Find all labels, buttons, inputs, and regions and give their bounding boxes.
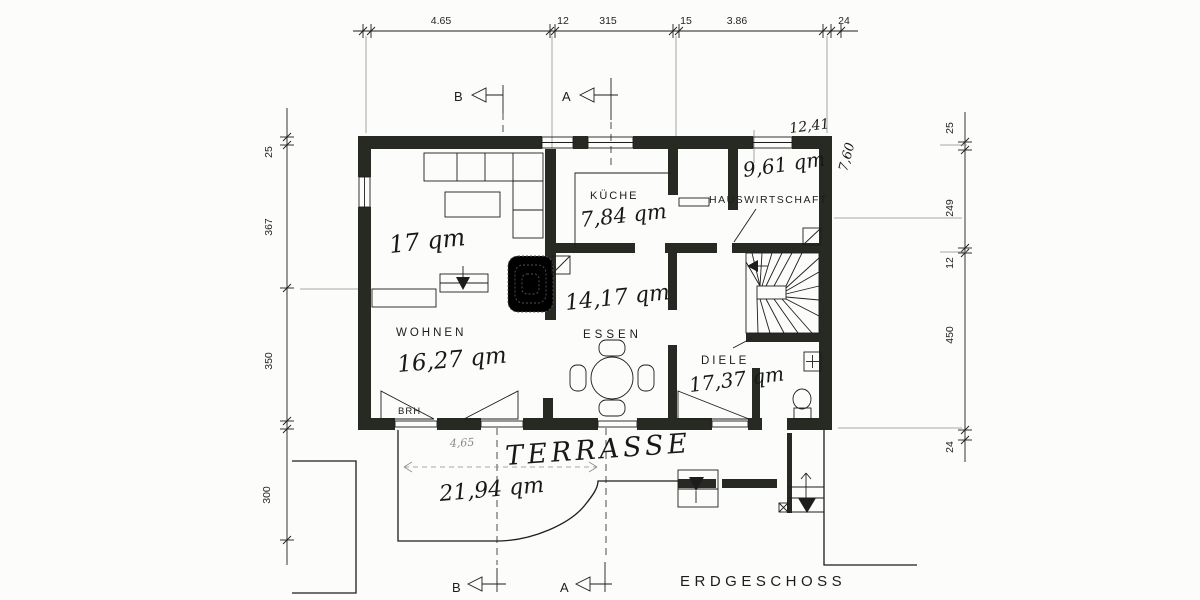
section-letter-a-bottom: A — [560, 580, 569, 595]
section-marker-b-top: B — [454, 85, 503, 134]
floor-plan-page: 4.65 12 315 15 3.86 24 25 367 350 300 — [0, 0, 1200, 600]
window-sill-bottom-1 — [395, 421, 437, 427]
dining-chair — [599, 340, 625, 356]
room-label-kueche: KÜCHE — [590, 190, 639, 202]
window-sill-bottom-2 — [481, 421, 523, 427]
sideboard — [372, 289, 436, 307]
floor-title: ERDGESCHOSS — [680, 573, 846, 590]
dim-label-left-1: 367 — [263, 218, 275, 236]
dim-label-left-2: 350 — [263, 352, 275, 370]
entrance-steps-left — [678, 470, 718, 507]
garage-outline — [292, 461, 356, 593]
wall-under-stairs — [746, 333, 819, 342]
stair-direction-arrow — [747, 260, 768, 272]
section-marker-b-bottom: B — [452, 428, 506, 595]
section-letter-a-top: A — [562, 89, 571, 104]
window-left — [359, 177, 370, 207]
dim-label-right-0: 25 — [944, 122, 956, 134]
section-letter-b-top: B — [454, 89, 463, 104]
section-letter-b-bottom: B — [452, 580, 461, 595]
step-element — [440, 266, 488, 292]
dim-label-right-1: 249 — [944, 199, 956, 217]
door-swing-wohnen-2 — [464, 391, 518, 419]
dim-label-right-2: 12 — [944, 257, 956, 269]
dim-label-left-3: 300 — [261, 486, 273, 504]
dim-label-top-1: 12 — [557, 15, 569, 27]
area-label-wohnen: 16,27 qm — [396, 343, 508, 378]
toilet — [793, 389, 811, 419]
dim-label-top-5: 24 — [838, 15, 850, 27]
door-swing-diele — [678, 391, 749, 419]
dim-label-right-4: 24 — [944, 441, 956, 453]
dining-chair — [638, 365, 654, 391]
dim-label-top-2: 315 — [599, 15, 617, 27]
room-labels: WOHNEN 16,27 qm 17 qm KÜCHE 7,84 qm HAUS… — [388, 147, 828, 507]
wall-kueche-right — [668, 149, 678, 195]
room-label-wohnen: WOHNEN — [396, 327, 466, 339]
window-top-3 — [753, 137, 792, 148]
door-leaf-hauswirtschaft — [734, 209, 756, 242]
entrance-steps-right — [779, 433, 824, 513]
brh-label: BRH — [398, 406, 421, 417]
dim-label-top-3: 15 — [680, 15, 692, 27]
window-top-1 — [542, 137, 573, 148]
dim-label-right-3: 450 — [944, 326, 956, 344]
room-label-terrasse: TERRASSE — [504, 428, 692, 472]
room-label-hauswirtschaft: HAUSWIRTSCHAFT — [709, 194, 828, 206]
dining-chair — [570, 365, 586, 391]
terrace-door-essen — [598, 421, 637, 427]
section-arrow-a-top — [580, 88, 594, 102]
door-leaf-kueche — [679, 198, 709, 206]
dim-chain-right: 25 249 12 450 24 — [834, 112, 972, 462]
section-arrow-b-top — [472, 88, 486, 102]
dining-set — [570, 340, 654, 416]
terrace-door-diele — [712, 421, 748, 427]
room-label-essen: ESSEN — [583, 329, 642, 341]
staircase — [746, 253, 819, 333]
coffee-table — [445, 192, 500, 217]
annotation-terrace-width: 4,65 — [448, 436, 474, 450]
section-arrow-b-bottom — [468, 577, 482, 591]
fireplace — [508, 256, 553, 312]
area-label-terrasse: 21,94 qm — [437, 473, 545, 507]
area-label-essen: 14,17 qm — [564, 280, 671, 316]
annotation-overall-width: 12,41 — [789, 116, 831, 137]
section-arrow-a-bottom — [576, 577, 590, 591]
room-label-diele: DIELE — [701, 355, 749, 367]
dining-table — [591, 357, 633, 399]
area-note-wohnen: 17 qm — [388, 223, 467, 259]
dim-label-left-0: 25 — [263, 146, 275, 158]
vent-shaft-box — [803, 228, 821, 245]
wall-kueche-essen — [545, 243, 635, 253]
floor-plan-drawing: 4.65 12 315 15 3.86 24 25 367 350 300 — [0, 0, 1200, 600]
window-top-2 — [588, 137, 633, 148]
annotation-overall-depth: 7,60 — [836, 141, 858, 173]
dim-label-top-4: 3.86 — [727, 15, 748, 27]
dim-chain-left: 25 367 350 300 — [261, 108, 362, 565]
dining-chair — [599, 400, 625, 416]
site-path-edge — [824, 430, 917, 565]
door-leaf-wc — [733, 338, 752, 348]
dim-label-top-0: 4.65 — [431, 15, 452, 27]
washbasin — [804, 352, 821, 371]
area-label-kueche: 7,84 qm — [579, 199, 668, 232]
section-marker-a-top: A — [562, 78, 618, 165]
